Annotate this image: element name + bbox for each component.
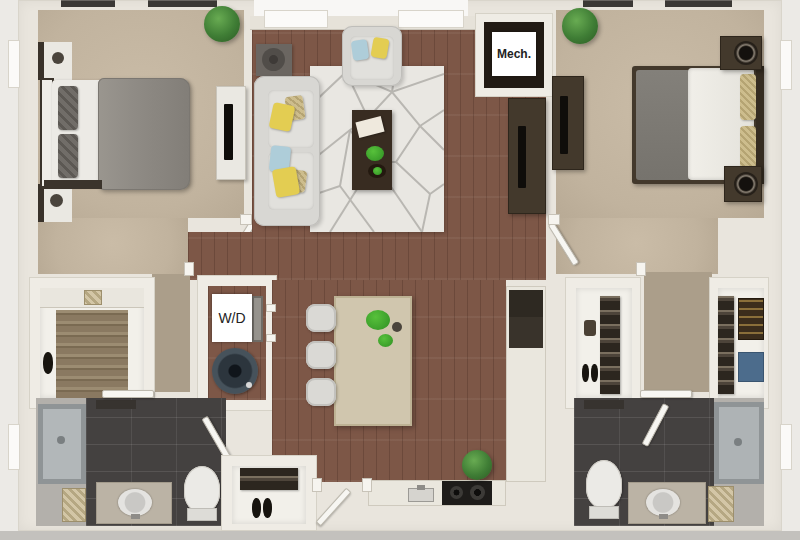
bar-stool-3 [306, 378, 336, 406]
closet-a-clothes [600, 296, 620, 394]
hall-wood-strip-left [188, 232, 252, 280]
bedroom1-window-2 [148, 0, 217, 7]
island-bowl [392, 322, 402, 332]
window-sill-right-top [780, 40, 792, 90]
hallway-right-carpet [644, 272, 712, 392]
bath2-hamper [708, 486, 734, 522]
coat-closet-clothes [240, 468, 298, 490]
bedroom1-duvet [98, 78, 190, 190]
bath1-hamper [62, 488, 86, 522]
living-tv-console [508, 98, 546, 214]
coffee-table-plant [366, 146, 384, 161]
living-tv [518, 126, 526, 188]
floor-plan-page: { "labels": { "mech_room": "Mech.", "was… [0, 0, 800, 540]
bath2-toilet-bowl [586, 460, 622, 508]
bedroom2-tv-console [552, 76, 584, 170]
patio-door-2 [398, 10, 464, 28]
bath1-towel-shelf [96, 400, 136, 409]
entry-jamb-left [312, 478, 322, 492]
bar-stool-1 [306, 304, 336, 332]
bedroom2-window-2 [665, 0, 732, 7]
bedroom1-pillow-2 [58, 134, 78, 178]
kitchen-plant [462, 450, 492, 480]
bath2-faucet [659, 514, 668, 519]
bath1-toilet-bowl [184, 466, 220, 512]
bedroom2-pillow-2 [740, 126, 756, 168]
island-greens-2 [378, 334, 393, 347]
laundry-door-hinge-2 [266, 334, 276, 342]
bath1-door-open [102, 390, 154, 398]
bath1-toilet-tank [187, 508, 217, 521]
stove-burner-1 [450, 486, 463, 499]
closet-left-shoes [43, 352, 53, 374]
dryer-panel [252, 296, 263, 342]
bedroom2-pillow-1 [740, 74, 756, 120]
bedroom1-plant [204, 6, 240, 42]
laundry-door-hinge-1 [266, 304, 276, 312]
bath1-faucet [131, 514, 140, 519]
window-sill-right-bottom [780, 424, 792, 470]
bar-stool-2 [306, 341, 336, 369]
bedroom2-blanket [636, 70, 690, 180]
bedroom1-pillow-1 [58, 86, 78, 130]
entry-shoe-1 [252, 498, 261, 518]
bedroom1-door-jamb [240, 214, 252, 225]
hallway-left-carpet [152, 274, 190, 392]
closet-left-clothes [56, 310, 128, 398]
stove-burner-2 [470, 485, 485, 500]
window-sill-left-top [8, 40, 20, 88]
bath2-sink [646, 489, 680, 516]
bedroom1-carpet-extension [38, 218, 188, 274]
bottom-shadow-band [0, 531, 800, 540]
apartment-floor-plan: Mech. W/D [0, 0, 800, 540]
bath2-toilet-tank [589, 506, 619, 519]
armchair-pillow-blue [351, 39, 370, 61]
mech-label-card: Mech. [492, 32, 536, 76]
washer-dryer-label: W/D [218, 310, 245, 326]
bowl-greens [373, 167, 382, 175]
bedroom1-window-1 [61, 0, 115, 7]
closet-left-basket [84, 290, 102, 305]
tub-drain [57, 436, 65, 444]
nightstand-decor [52, 52, 64, 64]
closet-b-bin [738, 352, 764, 382]
hall-right-jamb [636, 262, 646, 276]
bedroom1-tv [224, 104, 233, 160]
bedroom2-tv [560, 96, 568, 154]
bedroom2-window-1 [583, 0, 633, 7]
washer-knob [246, 382, 252, 388]
bath2-towel-shelf [584, 400, 624, 409]
mech-label: Mech. [497, 47, 531, 61]
bedroom2-door-jamb [548, 214, 560, 225]
hall-left-jamb [184, 262, 194, 276]
window-sill-left-bottom [8, 424, 20, 470]
armchair-pillow-yellow [370, 37, 389, 59]
kitchen-faucet [417, 485, 425, 490]
side-table-tray [262, 48, 285, 71]
nightstand-decor [50, 194, 63, 207]
bedroom1-bench [44, 180, 102, 189]
bedroom2-lamp-bottom [734, 172, 758, 196]
closet-b-clothes [718, 296, 734, 394]
closet-a-shoe-2 [591, 364, 598, 382]
washer-dryer-card: W/D [212, 294, 252, 342]
bathtub [38, 404, 86, 484]
sofa-pillow-yellow-2 [272, 166, 300, 198]
kitchen-sink [408, 488, 434, 502]
patio-door-1 [264, 10, 328, 28]
closet-b-baskets [738, 298, 764, 340]
entry-jamb-right [362, 478, 372, 492]
closet-a-boot [584, 320, 596, 336]
bath1-sink [118, 489, 152, 516]
bath2-door-open [640, 390, 692, 398]
bedroom2-lamp-top [734, 41, 758, 65]
closet-a-shoe-1 [582, 364, 589, 382]
shower-drain [734, 438, 742, 446]
refrigerator [509, 290, 543, 348]
bedroom2-plant [562, 8, 598, 44]
entry-shoe-2 [263, 498, 272, 518]
island-greens-1 [366, 310, 390, 330]
